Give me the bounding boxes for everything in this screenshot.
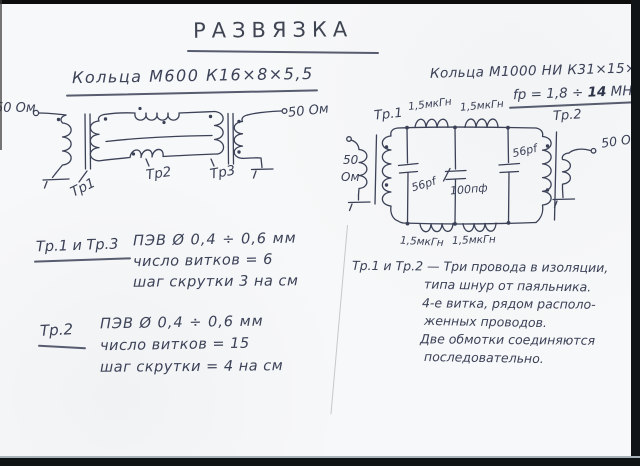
- wire-path: [351, 140, 359, 150]
- inductor-top2-label: 1,5мкГн: [460, 98, 505, 114]
- scan-edge-right: [631, 0, 640, 466]
- transformer-tr3: [228, 109, 287, 178]
- right-section-header: Кольца М1000 НИ К31×15×8: [430, 60, 640, 82]
- left-impedance-left-label: 50 Ом: [0, 101, 36, 116]
- core-path: [85, 114, 91, 169]
- core-path: [228, 114, 234, 165]
- inductor-bottom2-label: 1,5мкГн: [452, 233, 496, 247]
- note1-heading: Тр.1 и Тр.3: [36, 237, 119, 256]
- note2-heading: Тр.2: [40, 320, 74, 340]
- note1-underline: [34, 257, 131, 262]
- tr2-label: Тр.2: [553, 107, 583, 124]
- polarity-dot: [237, 120, 240, 123]
- ground-symbol: [43, 173, 69, 188]
- inductor-bottom1-label: 1,5мкГн: [400, 235, 444, 249]
- capacitor3-label: 56pf: [511, 141, 540, 160]
- note1-line2: число витков = 6: [133, 252, 273, 270]
- inductor-top1-label: 1,5мкГн: [408, 96, 453, 113]
- right-circuit-schematic: Тр.1 50 Ом 1,5мкГн 1,: [340, 92, 638, 270]
- scan-edge-left: [0, 0, 2, 150]
- left-impedance-right-label: 50 Ом: [287, 102, 329, 121]
- right-note-text1: Три провода в изоляции,: [443, 259, 608, 275]
- note2-line2: число витков = 15: [100, 336, 250, 355]
- label-pointer: [146, 159, 149, 166]
- polarity-dot: [138, 107, 141, 110]
- left-section-header: Кольца М600 К16×8×5,5: [72, 64, 314, 87]
- wire-path: [39, 113, 66, 115]
- coil-path: [56, 115, 71, 173]
- polarity-dot: [57, 118, 60, 121]
- transformer-tr1: [43, 114, 107, 188]
- core-path: [375, 135, 377, 204]
- right-coil-path: [215, 112, 224, 155]
- transformer-tr2: [99, 107, 224, 161]
- right-impedance-left-bottom: Ом: [341, 170, 360, 184]
- polarity-dot: [132, 152, 135, 155]
- polarity-dot: [546, 188, 549, 191]
- coil-path: [234, 115, 247, 158]
- capacitor1: [399, 128, 419, 223]
- inductor-bottom1: [420, 223, 453, 231]
- capacitor3: [499, 128, 520, 223]
- ground-symbol: [553, 189, 575, 208]
- polarity-dot: [162, 121, 165, 124]
- scan-edge-bottom: [0, 456, 640, 466]
- note2-line1: ПЭВ Ø 0,4 ÷ 0,6 мм: [100, 314, 264, 333]
- label-pointer: [211, 159, 214, 166]
- polarity-dot: [237, 150, 240, 153]
- right-impedance-left-top: 50: [343, 153, 359, 167]
- terminal-circle: [591, 149, 596, 154]
- paper-sheet: РАЗВЯЗКА Кольца М600 К16×8×5,5 Кольца М1…: [0, 0, 640, 466]
- right-note-heading: Тр.1 и Тр.2: [352, 258, 423, 274]
- right-note-line4: женных проводов.: [424, 313, 547, 330]
- ground-symbol: [243, 158, 274, 178]
- scan-edge-top: [0, 0, 640, 4]
- ground-symbol: [349, 195, 371, 211]
- terminal-circle: [282, 109, 287, 114]
- tr3-label: Тр3: [209, 162, 237, 182]
- capacitor2: [444, 127, 467, 222]
- capacitor2-label: 100пф: [450, 181, 489, 197]
- right-note-line6: последовательно.: [424, 349, 544, 366]
- left-input-terminal: [33, 110, 66, 115]
- polarity-dot: [104, 117, 107, 120]
- core-path: [106, 136, 212, 142]
- bottom-winding-path: [99, 149, 218, 160]
- page-title: РАЗВЯЗКА: [193, 17, 353, 42]
- polarity-dot: [209, 115, 212, 118]
- right-note-line1: Тр.1 и Тр.2 — Три провода в изоляции,: [352, 258, 608, 275]
- tr1-label: Тр1: [68, 175, 98, 201]
- tr1-label: Тр.1: [373, 106, 403, 124]
- wire-path: [569, 149, 591, 153]
- right-note-line5: Две обмотки соединяются: [420, 331, 595, 348]
- right-note-line3: 4-е витка, рядом располо-: [422, 295, 596, 312]
- coil-path: [90, 115, 104, 161]
- inductor-top1: [415, 119, 448, 127]
- note2-line3: шаг скрутки = 4 на см: [100, 358, 283, 376]
- polarity-dot: [385, 145, 388, 148]
- bottom-rail: [403, 223, 536, 224]
- left-circuit-schematic: 50 Ом: [0, 96, 336, 212]
- capacitor1-label: 56pf: [410, 174, 440, 194]
- big-winding-path: [382, 128, 403, 223]
- wire-path: [248, 111, 282, 115]
- title-underline: [187, 50, 379, 54]
- right-input-section: 50 Ом: [341, 128, 403, 223]
- tr2-label: Тр2: [145, 164, 172, 183]
- note1-line1: ПЭВ Ø 0,4 ÷ 0,6 мм: [133, 231, 297, 250]
- transformer-tr2-right: Тр.2 50 Ом: [536, 107, 640, 222]
- polarity-dot: [546, 144, 549, 147]
- coil-path: [562, 153, 570, 189]
- node-dot: [507, 221, 511, 225]
- top-rail: [398, 127, 536, 128]
- right-note-dash: —: [423, 259, 444, 274]
- right-note-line2: типа шнур от паяльника.: [424, 277, 591, 295]
- filter-network: 1,5мкГн 1,5мкГн 56pf 100пф 56pf 1,5мкГн …: [398, 96, 540, 249]
- note1-line3: шаг скрутки 3 на см: [133, 273, 298, 290]
- coil-path: [359, 150, 367, 196]
- big-winding-path: [536, 128, 551, 223]
- node-dot: [453, 222, 457, 226]
- inductor-top2: [465, 119, 498, 127]
- node-dot: [406, 222, 410, 226]
- scanned-notebook-page: РАЗВЯЗКА Кольца М600 К16×8×5,5 Кольца М1…: [0, 0, 640, 466]
- terminal-circle: [347, 137, 352, 142]
- polarity-dot: [385, 183, 388, 186]
- top-winding-path: [104, 112, 215, 121]
- note2-underline: [38, 345, 86, 349]
